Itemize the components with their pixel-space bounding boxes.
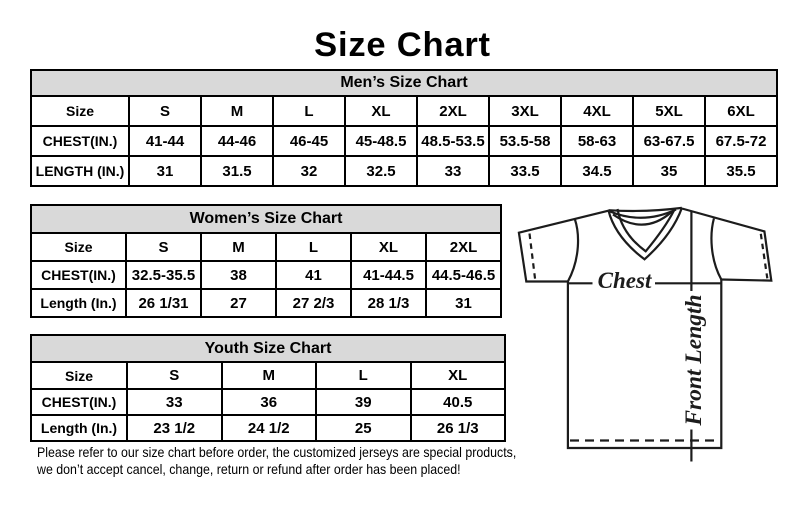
svg-text:Chest: Chest: [598, 268, 652, 293]
svg-text:Front Length: Front Length: [681, 294, 707, 426]
